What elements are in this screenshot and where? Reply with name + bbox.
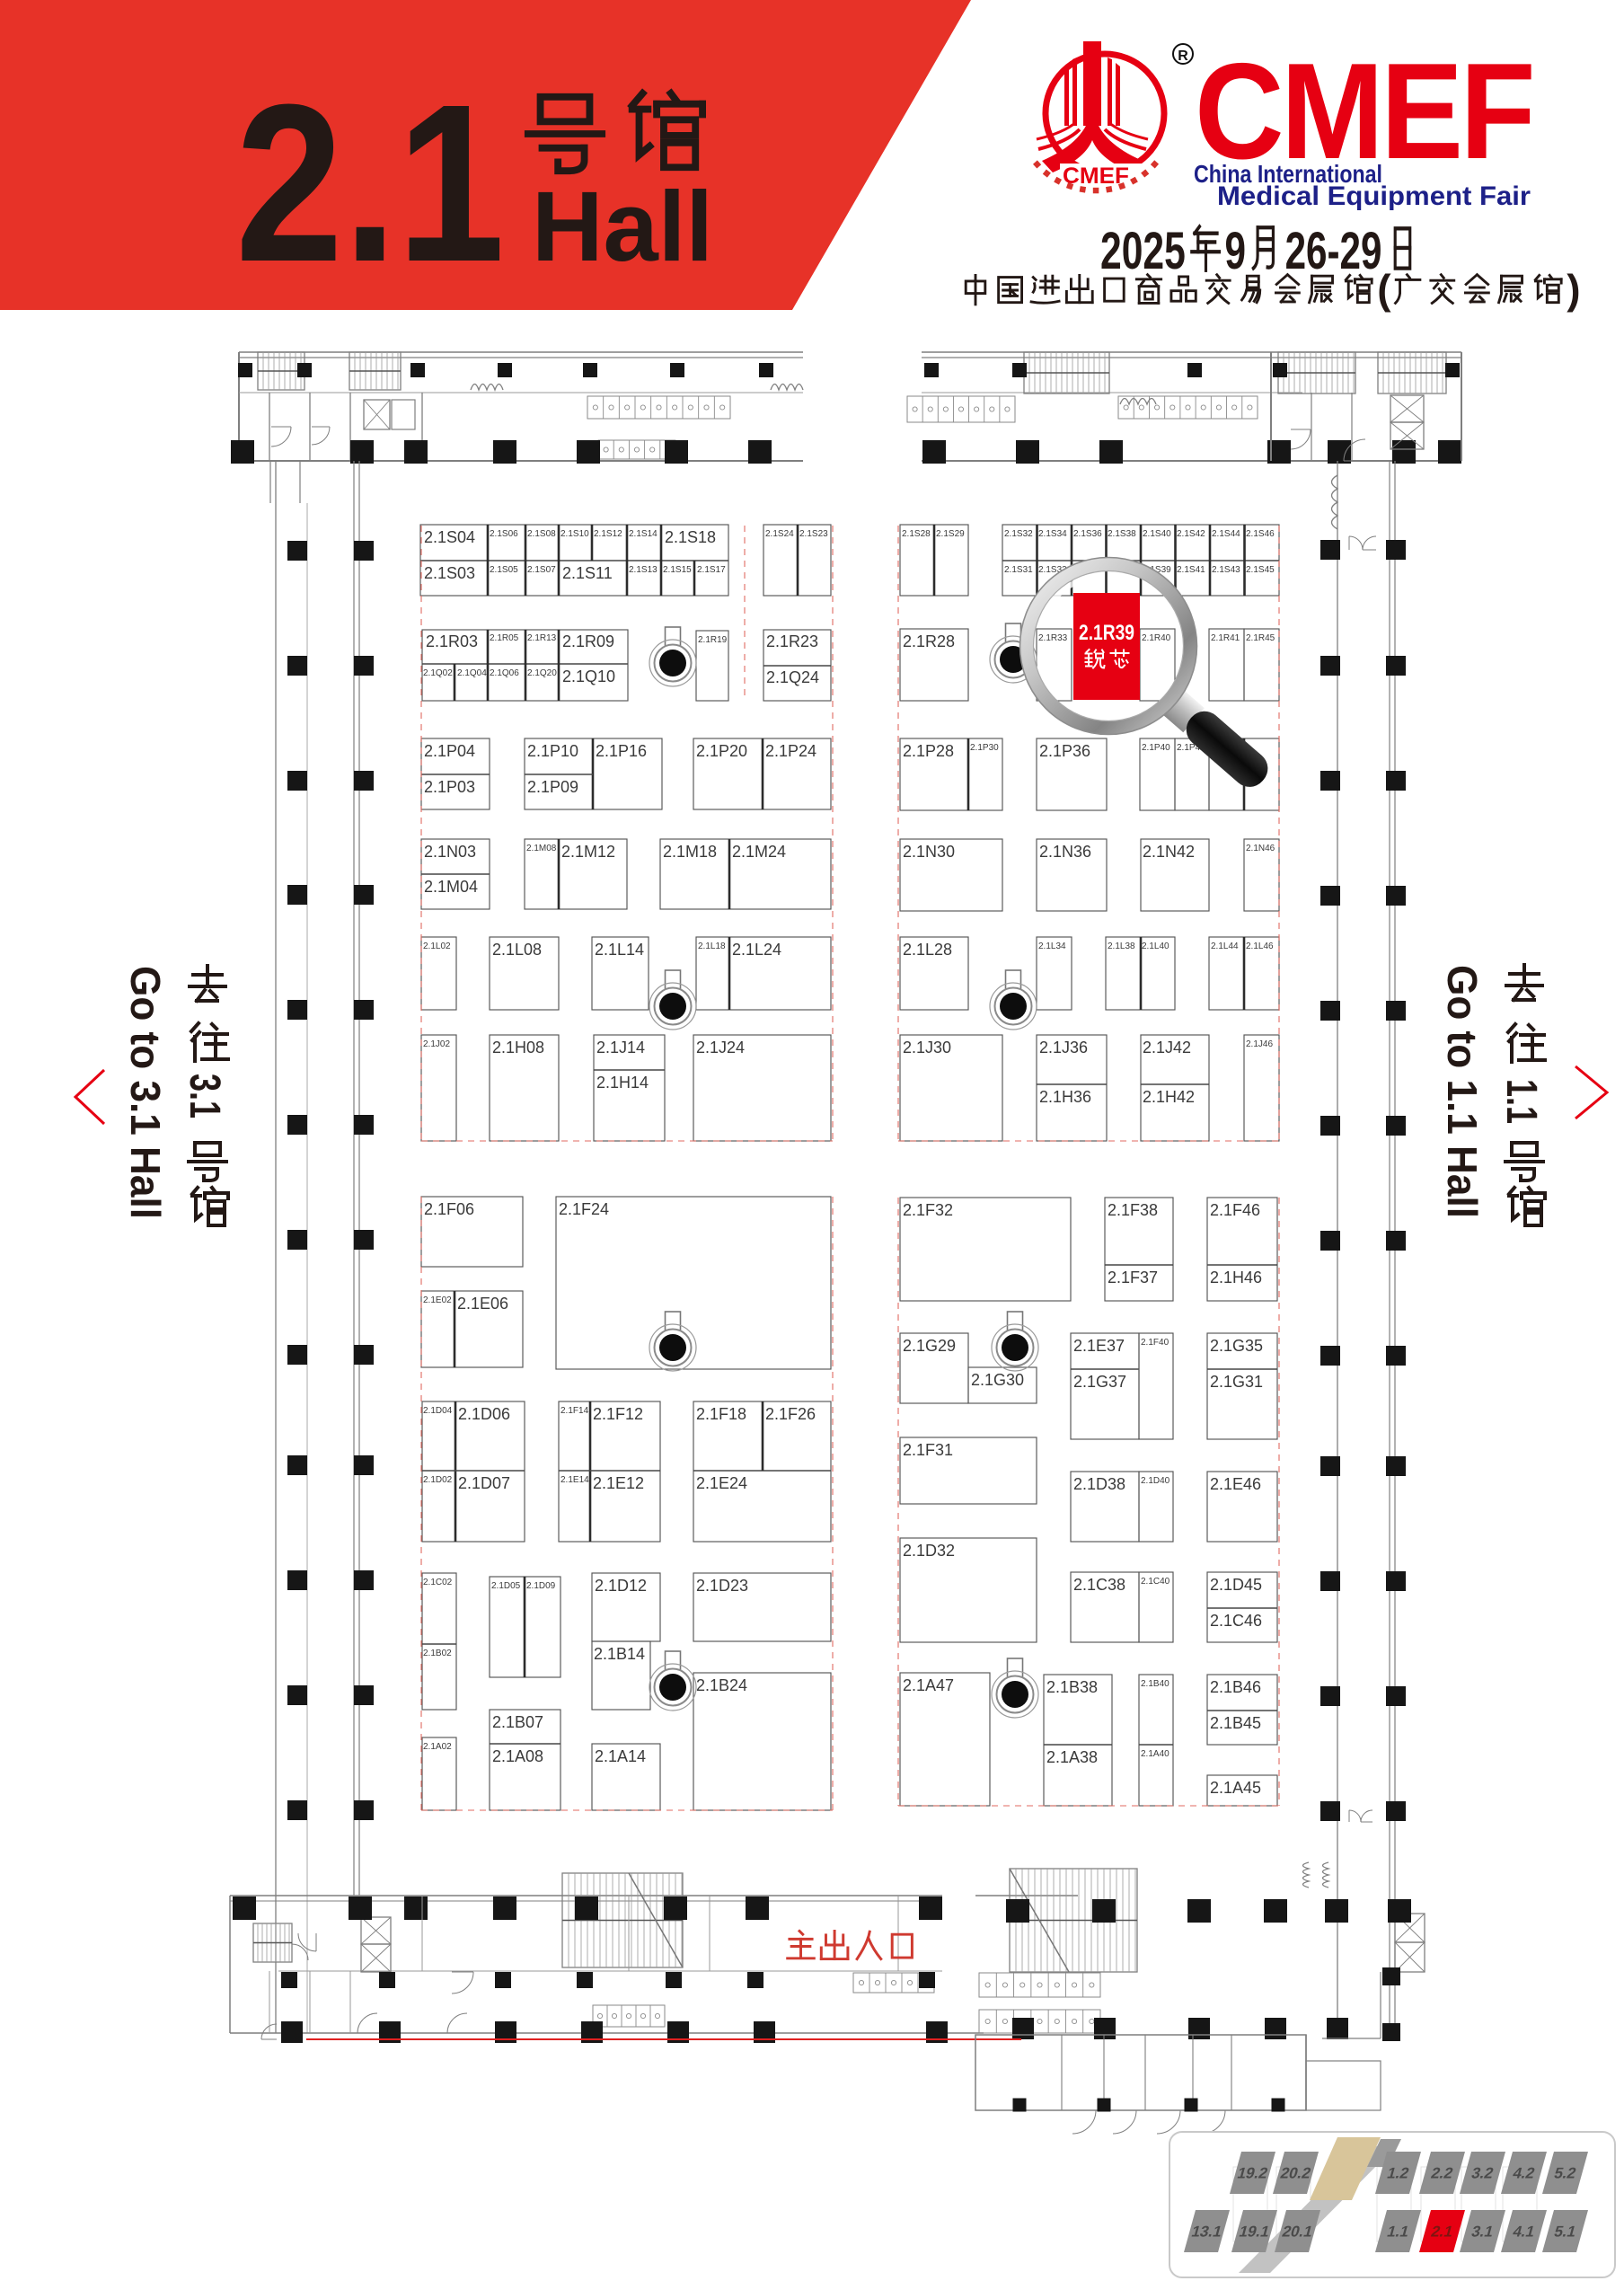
svg-text:): ): [1567, 266, 1580, 313]
svg-text:19.2: 19.2: [1235, 2164, 1269, 2182]
svg-text:2.1S12: 2.1S12: [594, 529, 622, 539]
svg-text:2.1J42: 2.1J42: [1143, 1039, 1191, 1057]
svg-text:2.1R33: 2.1R33: [1038, 633, 1068, 643]
svg-text:2.1H36: 2.1H36: [1039, 1088, 1091, 1106]
svg-text:2.1Q10: 2.1Q10: [562, 668, 615, 685]
svg-text:2.1S13: 2.1S13: [629, 565, 658, 575]
svg-text:2.1P16: 2.1P16: [596, 742, 647, 760]
svg-text:2.1C02: 2.1C02: [423, 1578, 453, 1587]
svg-text:20.2: 20.2: [1278, 2164, 1312, 2182]
svg-text:2.1G35: 2.1G35: [1210, 1337, 1263, 1355]
svg-text:2.1S46: 2.1S46: [1246, 529, 1275, 539]
svg-text:2.1M08: 2.1M08: [526, 844, 557, 853]
svg-text:2.1Q24: 2.1Q24: [766, 668, 819, 686]
svg-text:2.1A45: 2.1A45: [1210, 1779, 1261, 1797]
svg-text:2.1L34: 2.1L34: [1038, 942, 1066, 951]
svg-text:2.1B46: 2.1B46: [1210, 1678, 1261, 1696]
svg-text:2.1N46: 2.1N46: [1246, 844, 1275, 853]
svg-text:2.1L46: 2.1L46: [1246, 942, 1274, 951]
svg-text:3.1: 3.1: [181, 1074, 228, 1118]
svg-text:2.1B45: 2.1B45: [1210, 1714, 1261, 1732]
svg-text:2.1J14: 2.1J14: [596, 1039, 645, 1057]
svg-text:2.1E06: 2.1E06: [457, 1295, 508, 1313]
svg-text:2.1S05: 2.1S05: [490, 565, 518, 575]
svg-text:2.1G30: 2.1G30: [971, 1371, 1024, 1389]
svg-text:Medical Equipment Fair: Medical Equipment Fair: [1217, 181, 1531, 211]
svg-text:2.1R23: 2.1R23: [766, 632, 818, 650]
svg-text:2.1S18: 2.1S18: [665, 528, 716, 546]
svg-text:2.1S41: 2.1S41: [1177, 565, 1205, 575]
svg-text:2.1S42: 2.1S42: [1177, 529, 1205, 539]
svg-text:2.1F37: 2.1F37: [1108, 1269, 1158, 1286]
svg-text:2025: 2025: [1100, 221, 1186, 279]
svg-text:2.1H46: 2.1H46: [1210, 1269, 1262, 1286]
svg-text:2.1R09: 2.1R09: [562, 632, 614, 650]
svg-text:2.1G29: 2.1G29: [903, 1337, 956, 1355]
svg-text:2.1S40: 2.1S40: [1143, 529, 1171, 539]
svg-text:2.1H14: 2.1H14: [596, 1074, 649, 1092]
svg-text:2.1S28: 2.1S28: [902, 529, 931, 539]
svg-text:2.1B24: 2.1B24: [696, 1676, 747, 1694]
svg-text:2.1C38: 2.1C38: [1073, 1576, 1125, 1594]
svg-text:2.1S36: 2.1S36: [1073, 529, 1102, 539]
svg-text:2.1D23: 2.1D23: [696, 1577, 748, 1595]
svg-text:2.1C46: 2.1C46: [1210, 1612, 1262, 1630]
svg-text:2.1P30: 2.1P30: [970, 743, 999, 753]
svg-text:2.1S24: 2.1S24: [765, 529, 794, 539]
svg-text:Go to 3.1 Hall: Go to 3.1 Hall: [122, 966, 169, 1219]
svg-text:2.1R05: 2.1R05: [490, 633, 519, 643]
svg-text:2.1S44: 2.1S44: [1212, 529, 1240, 539]
svg-text:13.1: 13.1: [1189, 2223, 1224, 2241]
svg-text:2.1L28: 2.1L28: [903, 941, 952, 959]
svg-text:2.1F46: 2.1F46: [1210, 1201, 1260, 1219]
svg-text:9: 9: [1225, 221, 1247, 279]
svg-text:2.1F32: 2.1F32: [903, 1201, 953, 1219]
svg-text:2.1M04: 2.1M04: [424, 878, 478, 896]
svg-text:2.1E24: 2.1E24: [696, 1474, 747, 1492]
svg-text:2.1D12: 2.1D12: [595, 1577, 647, 1595]
svg-text:2.1A14: 2.1A14: [595, 1747, 646, 1765]
svg-text:2.1B02: 2.1B02: [423, 1649, 452, 1658]
svg-text:2.1S03: 2.1S03: [424, 564, 475, 582]
svg-text:2.1H08: 2.1H08: [492, 1039, 544, 1057]
svg-text:2.1G37: 2.1G37: [1073, 1373, 1126, 1391]
svg-text:19.1: 19.1: [1237, 2223, 1272, 2241]
svg-text:2.1B38: 2.1B38: [1046, 1678, 1098, 1696]
svg-text:2.1D05: 2.1D05: [491, 1581, 521, 1591]
svg-text:2.1D40: 2.1D40: [1141, 1476, 1170, 1486]
svg-text:2.1F31: 2.1F31: [903, 1441, 953, 1459]
svg-text:2.1D02: 2.1D02: [423, 1475, 453, 1485]
svg-text:2.1S15: 2.1S15: [663, 565, 692, 575]
svg-text:2.1D04: 2.1D04: [423, 1406, 453, 1416]
svg-text:2.1N03: 2.1N03: [424, 843, 476, 861]
svg-text:2.1A08: 2.1A08: [492, 1747, 543, 1765]
svg-text:2.1H42: 2.1H42: [1143, 1088, 1195, 1106]
svg-text:2.1D32: 2.1D32: [903, 1542, 955, 1560]
svg-text:2.1Q06: 2.1Q06: [490, 668, 519, 678]
svg-text:26-29: 26-29: [1285, 221, 1382, 279]
svg-text:2.1R39: 2.1R39: [1079, 621, 1134, 645]
svg-text:2.1S45: 2.1S45: [1246, 565, 1275, 575]
svg-text:2.1J02: 2.1J02: [423, 1039, 450, 1049]
svg-text:2.1L40: 2.1L40: [1142, 942, 1169, 951]
svg-text:2.1F24: 2.1F24: [559, 1200, 609, 1218]
svg-text:2.1N30: 2.1N30: [903, 843, 955, 861]
svg-text:2.1L14: 2.1L14: [595, 941, 644, 959]
svg-text:2.1S07: 2.1S07: [527, 565, 556, 575]
svg-text:2.1P03: 2.1P03: [424, 778, 475, 796]
svg-text:2.1L18: 2.1L18: [698, 942, 726, 951]
svg-text:2.1D38: 2.1D38: [1073, 1475, 1125, 1493]
svg-text:2.1S31: 2.1S31: [1004, 565, 1033, 575]
svg-text:2.1R13: 2.1R13: [527, 633, 557, 643]
svg-text:2.1L44: 2.1L44: [1211, 942, 1239, 951]
svg-text:2.1F38: 2.1F38: [1108, 1201, 1158, 1219]
svg-text:2.1L24: 2.1L24: [732, 941, 781, 959]
svg-text:2.1A40: 2.1A40: [1141, 1749, 1169, 1759]
svg-text:2.1B14: 2.1B14: [594, 1645, 645, 1663]
svg-text:2.1A47: 2.1A47: [903, 1676, 954, 1694]
svg-text:2.1S34: 2.1S34: [1038, 529, 1067, 539]
svg-text:2.1F18: 2.1F18: [696, 1405, 746, 1423]
svg-text:2.1S04: 2.1S04: [424, 528, 475, 546]
svg-text:R: R: [1178, 49, 1188, 64]
svg-text:2.1Q04: 2.1Q04: [457, 668, 487, 678]
svg-text:2.1E37: 2.1E37: [1073, 1337, 1125, 1355]
svg-text:2.1S29: 2.1S29: [936, 529, 965, 539]
svg-text:2.1B07: 2.1B07: [492, 1713, 543, 1731]
svg-text:2.1D07: 2.1D07: [458, 1474, 510, 1492]
svg-text:2.1F26: 2.1F26: [765, 1405, 816, 1423]
svg-text:2.1R45: 2.1R45: [1246, 633, 1275, 643]
svg-text:2.1J36: 2.1J36: [1039, 1039, 1088, 1057]
svg-text:2.1F06: 2.1F06: [424, 1200, 474, 1218]
svg-text:2.1P40: 2.1P40: [1142, 743, 1170, 753]
svg-text:2.1R03: 2.1R03: [426, 632, 478, 650]
svg-text:2.1R28: 2.1R28: [903, 632, 955, 650]
svg-text:2.1M18: 2.1M18: [663, 843, 717, 861]
svg-text:2.1D09: 2.1D09: [526, 1581, 556, 1591]
svg-text:2.1S11: 2.1S11: [562, 564, 613, 582]
svg-text:2.1Q02: 2.1Q02: [423, 668, 453, 678]
svg-text:2.1S14: 2.1S14: [629, 529, 658, 539]
svg-text:2.1P24: 2.1P24: [765, 742, 816, 760]
svg-text:1.1: 1.1: [1497, 1079, 1545, 1124]
svg-text:2.1D45: 2.1D45: [1210, 1576, 1262, 1594]
svg-text:2.1S43: 2.1S43: [1212, 565, 1240, 575]
svg-text:2.1R40: 2.1R40: [1142, 633, 1171, 643]
svg-text:2.1R41: 2.1R41: [1211, 633, 1240, 643]
svg-text:2.1E12: 2.1E12: [593, 1474, 644, 1492]
svg-text:2.1Q20: 2.1Q20: [527, 668, 557, 678]
svg-text:2.1S38: 2.1S38: [1108, 529, 1136, 539]
svg-text:2.1B40: 2.1B40: [1141, 1679, 1169, 1689]
svg-text:Go to 1.1 Hall: Go to 1.1 Hall: [1439, 965, 1486, 1218]
svg-text:2.1S32: 2.1S32: [1004, 529, 1033, 539]
svg-text:2.1J30: 2.1J30: [903, 1039, 951, 1057]
svg-text:2.1J24: 2.1J24: [696, 1039, 745, 1057]
svg-text:2.1P36: 2.1P36: [1039, 742, 1090, 760]
svg-text:2.1P20: 2.1P20: [696, 742, 747, 760]
svg-text:2.1N42: 2.1N42: [1143, 843, 1195, 861]
svg-text:2.1S06: 2.1S06: [490, 529, 518, 539]
svg-text:2.1F40: 2.1F40: [1141, 1338, 1169, 1348]
svg-text:2.1F12: 2.1F12: [593, 1405, 643, 1423]
svg-text:2.1R19: 2.1R19: [698, 635, 728, 645]
svg-text:2.1P04: 2.1P04: [424, 742, 475, 760]
svg-text:2.1J46: 2.1J46: [1246, 1039, 1273, 1049]
svg-text:20.1: 20.1: [1280, 2223, 1315, 2241]
svg-text:Hall: Hall: [532, 172, 713, 282]
svg-text:2.1E46: 2.1E46: [1210, 1475, 1261, 1493]
svg-text:2.1G31: 2.1G31: [1210, 1373, 1263, 1391]
svg-text:(: (: [1377, 266, 1391, 313]
svg-text:2.1L02: 2.1L02: [423, 942, 451, 951]
svg-text:2.1P09: 2.1P09: [527, 778, 578, 796]
svg-text:2.1M24: 2.1M24: [732, 843, 786, 861]
svg-text:2.1A38: 2.1A38: [1046, 1748, 1098, 1766]
svg-text:2.1E14: 2.1E14: [560, 1475, 589, 1485]
svg-text:2.1E02: 2.1E02: [423, 1295, 452, 1305]
svg-text:2.1N36: 2.1N36: [1039, 843, 1091, 861]
svg-text:2.1M12: 2.1M12: [561, 843, 615, 861]
svg-text:2.1S17: 2.1S17: [697, 565, 726, 575]
svg-text:2.1L08: 2.1L08: [492, 941, 542, 959]
svg-text:2.1S23: 2.1S23: [799, 529, 828, 539]
svg-text:2.1L38: 2.1L38: [1108, 942, 1135, 951]
svg-text:2.1D06: 2.1D06: [458, 1405, 510, 1423]
svg-text:2.1P28: 2.1P28: [903, 742, 954, 760]
svg-text:2.1S10: 2.1S10: [560, 529, 589, 539]
svg-text:2.1F14: 2.1F14: [560, 1406, 589, 1416]
svg-text:2.1S08: 2.1S08: [527, 529, 556, 539]
svg-text:2.1A02: 2.1A02: [423, 1742, 452, 1752]
svg-text:2.1: 2.1: [235, 57, 505, 308]
svg-text:2.1P10: 2.1P10: [527, 742, 578, 760]
svg-text:2.1C40: 2.1C40: [1141, 1577, 1170, 1587]
